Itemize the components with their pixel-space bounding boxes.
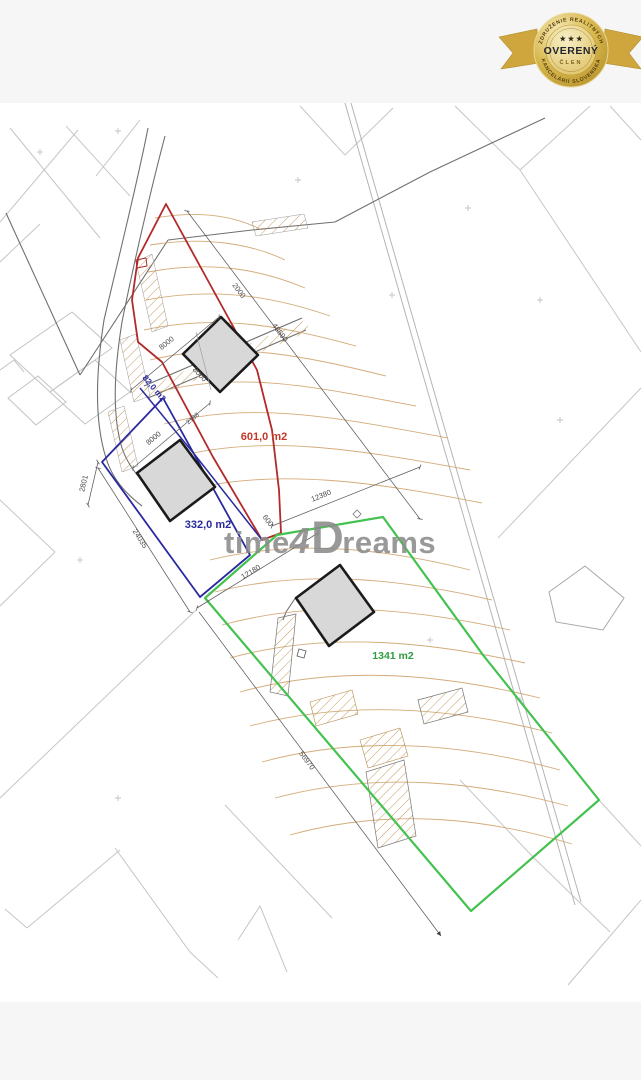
area-label-blue: 332,0 m2	[185, 519, 231, 531]
ribbon-right-wing	[603, 29, 641, 69]
plan-paper	[0, 103, 641, 1002]
ribbon-left-wing	[499, 29, 539, 69]
area-label-red: 601,0 m2	[241, 431, 287, 443]
site-plan: 8000 8000 48590 2000 8000 2138 2801 2403…	[0, 0, 641, 1080]
badge-stars-icon: ★ ★ ★	[560, 35, 583, 43]
badge-member: ČLEN	[560, 59, 583, 66]
verified-badge: ZDRUŽENIE REALITNÝCH KANCELÁRIÍ SLOVENSK…	[498, 5, 641, 95]
area-label-green: 1341 m2	[372, 650, 414, 662]
listing-image: 8000 8000 48590 2000 8000 2138 2801 2403…	[0, 0, 641, 1080]
badge-title: OVERENÝ	[544, 44, 599, 57]
